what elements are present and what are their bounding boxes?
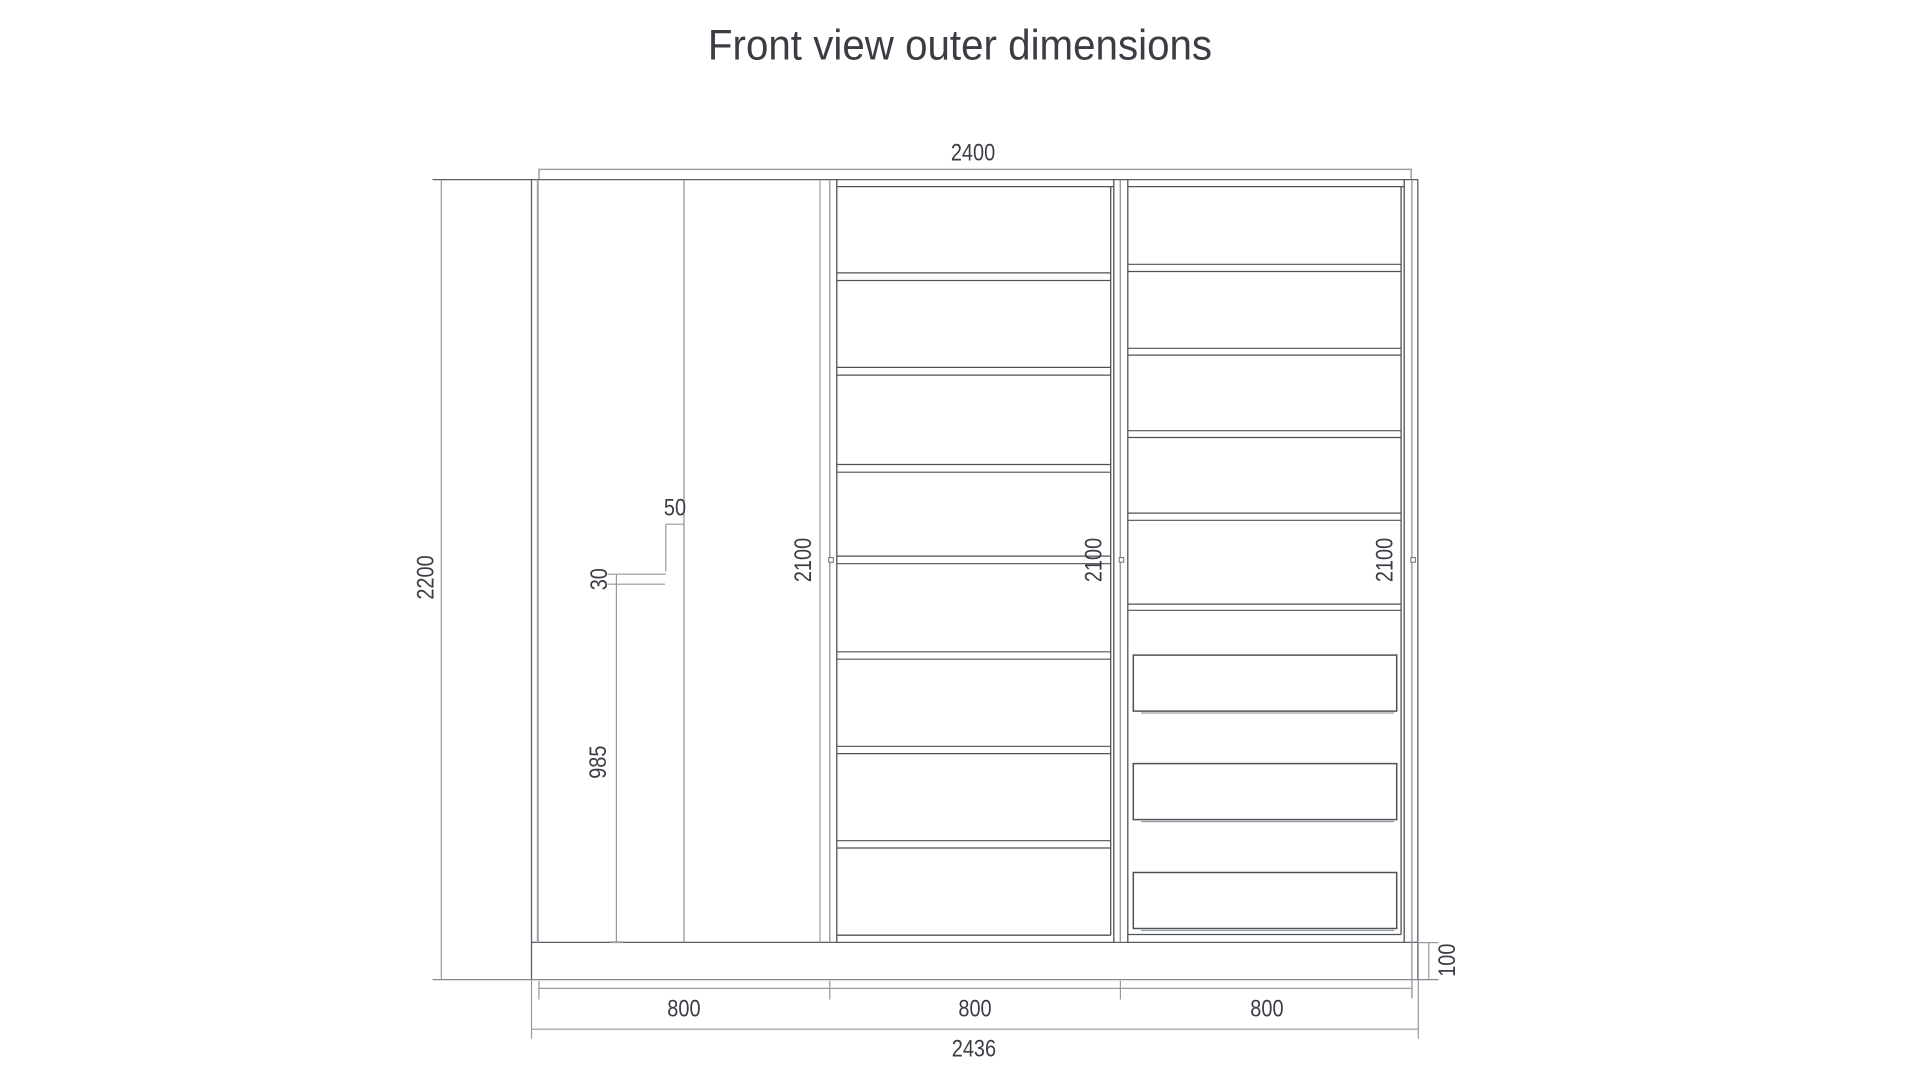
svg-text:2436: 2436 (952, 1035, 996, 1062)
svg-text:100: 100 (1433, 944, 1460, 977)
svg-text:2200: 2200 (412, 555, 439, 599)
svg-text:800: 800 (958, 995, 991, 1022)
svg-text:2100: 2100 (789, 538, 816, 582)
svg-text:2100: 2100 (1371, 538, 1398, 582)
svg-text:800: 800 (1250, 995, 1283, 1022)
svg-text:30: 30 (585, 568, 612, 590)
svg-text:985: 985 (584, 746, 611, 779)
svg-text:50: 50 (664, 494, 686, 521)
svg-text:2400: 2400 (951, 139, 995, 166)
svg-text:800: 800 (667, 995, 700, 1022)
svg-text:2100: 2100 (1080, 538, 1107, 582)
svg-text:Front view outer dimensions: Front view outer dimensions (708, 20, 1212, 68)
